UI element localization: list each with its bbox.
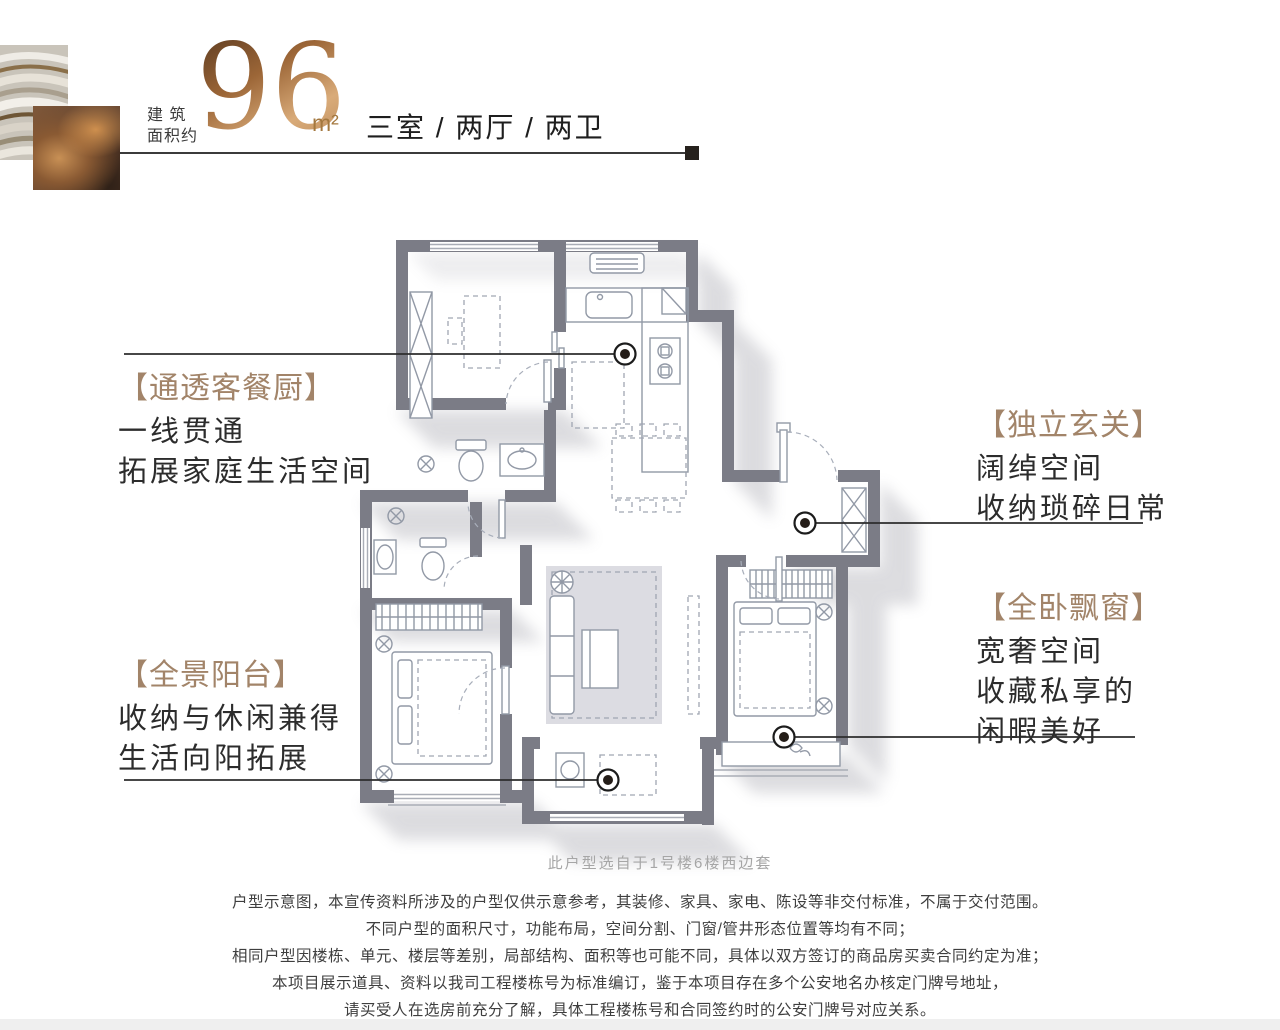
callout-dot-foyer — [795, 513, 816, 534]
callout-title: 【通透客餐厨】 — [118, 363, 374, 407]
shower-icon — [418, 456, 434, 472]
entry-door-arc — [787, 432, 837, 480]
callout-title: 【独立玄关】 — [976, 400, 1168, 444]
callout-line: 收纳琐碎日常 — [976, 489, 1168, 529]
wardrobe-icon — [376, 604, 482, 630]
kitchen-sink-icon — [586, 292, 632, 318]
callout-balcony: 【全景阳台】 收纳与休闲兼得 生活向阳拓展 — [118, 650, 342, 779]
callout-line: 闲暇美好 — [976, 712, 1162, 752]
entry-foyer — [777, 423, 866, 552]
ceiling-fan-icon — [551, 571, 573, 593]
dining-area — [612, 424, 686, 512]
callout-line: 一线贯通 — [118, 412, 374, 452]
disclaimer-line: 本项目展示道具、资料以我司工程楼栋号为标准编订，鉴于本项目存在多个公安地名办核定… — [0, 970, 1280, 997]
plan-caption: 此户型选自于1号楼6楼西边套 — [400, 852, 920, 873]
chair-icon — [448, 318, 462, 344]
callout-line: 生活向阳拓展 — [118, 739, 342, 779]
toilet-icon — [456, 440, 486, 481]
wardrobe-icon — [750, 570, 832, 598]
disclaimer-line: 请买受人在选房前充分了解，具体工程楼栋号和合同签约时的公安门牌号对应关系。 — [0, 997, 1280, 1024]
door-panel — [544, 360, 551, 402]
shoe-cabinet-icon — [842, 488, 866, 552]
tv-cabinet-icon — [688, 596, 699, 714]
callout-kitchen: 【通透客餐厨】 一线贯通 拓展家庭生活空间 — [118, 363, 374, 492]
callout-dot-balcony — [598, 770, 619, 791]
callout-line: 阔绰空间 — [976, 449, 1168, 489]
disclaimer: 户型示意图，本宣传资料所涉及的户型仅供示意参考，其装修、家具、家电、陈设等非交付… — [0, 889, 1280, 1024]
entry-door-panel — [780, 430, 787, 482]
callout-line: 收纳与休闲兼得 — [118, 699, 342, 739]
desk-icon — [464, 296, 500, 368]
bath-sink-icon — [374, 540, 396, 574]
toilet-icon — [420, 538, 446, 580]
range-hood-icon — [590, 253, 644, 273]
callout-title: 【全卧飘窗】 — [976, 583, 1162, 627]
bed-icon — [734, 602, 816, 716]
callout-dot-kitchen — [615, 344, 636, 365]
callout-baywindow: 【全卧飘窗】 宽奢空间 收藏私享的 闲暇美好 — [976, 583, 1162, 752]
callout-title: 【全景阳台】 — [118, 650, 342, 694]
stove-icon — [650, 338, 680, 384]
callout-line: 拓展家庭生活空间 — [118, 452, 374, 492]
washing-machine-icon — [556, 753, 584, 787]
callout-line: 宽奢空间 — [976, 632, 1162, 672]
disclaimer-line: 相同户型因楼栋、单元、楼层等差别，局部结构、面积等也可能不同，具体以双方签订的商… — [0, 943, 1280, 970]
disclaimer-line: 户型示意图，本宣传资料所涉及的户型仅供示意参考，其装修、家具、家电、陈设等非交付… — [0, 889, 1280, 916]
bath-sink-icon — [500, 444, 544, 476]
bed-icon — [392, 652, 492, 764]
callout-dot-baywindow — [774, 727, 795, 748]
door-arc — [444, 556, 478, 590]
page-root: 建 筑 面积约 96 m² 三室 / 两厅 / 两卫 — [0, 0, 1280, 1030]
dining-table-icon — [612, 438, 686, 498]
wardrobe-icon — [410, 292, 432, 418]
callout-foyer: 【独立玄关】 阔绰空间 收纳琐碎日常 — [976, 400, 1168, 529]
living-room — [546, 566, 699, 724]
cabinet-icon — [572, 362, 624, 428]
disclaimer-line: 不同户型的面积尺寸，功能布局，空间分割、门窗/管井形态位置等均有不同； — [0, 916, 1280, 943]
door-arc — [506, 362, 548, 404]
bedside-lamp-icon — [816, 604, 832, 714]
coffee-table-icon — [582, 630, 618, 688]
callout-line: 收藏私享的 — [976, 672, 1162, 712]
bedside-lamp-icon — [376, 636, 392, 782]
duct-icon — [662, 288, 686, 314]
sofa-icon — [550, 596, 574, 714]
